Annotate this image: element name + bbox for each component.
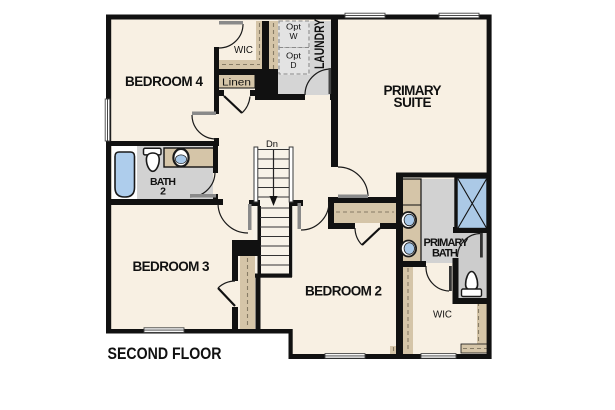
svg-text:Linen: Linen bbox=[222, 77, 251, 89]
svg-text:Dn: Dn bbox=[266, 139, 278, 150]
svg-text:WIC: WIC bbox=[433, 310, 452, 321]
svg-text:W: W bbox=[289, 31, 297, 41]
svg-text:2: 2 bbox=[160, 186, 166, 198]
svg-text:LAUNDRY: LAUNDRY bbox=[311, 19, 327, 69]
svg-text:BEDROOM 4: BEDROOM 4 bbox=[125, 74, 203, 89]
svg-text:BATH: BATH bbox=[432, 248, 458, 260]
svg-text:BEDROOM 2: BEDROOM 2 bbox=[305, 284, 382, 299]
svg-text:SUITE: SUITE bbox=[394, 95, 432, 110]
svg-text:SECOND FLOOR: SECOND FLOOR bbox=[108, 344, 222, 363]
svg-text:BEDROOM 3: BEDROOM 3 bbox=[133, 259, 210, 274]
svg-text:D: D bbox=[290, 60, 296, 70]
svg-text:WIC: WIC bbox=[234, 45, 253, 56]
